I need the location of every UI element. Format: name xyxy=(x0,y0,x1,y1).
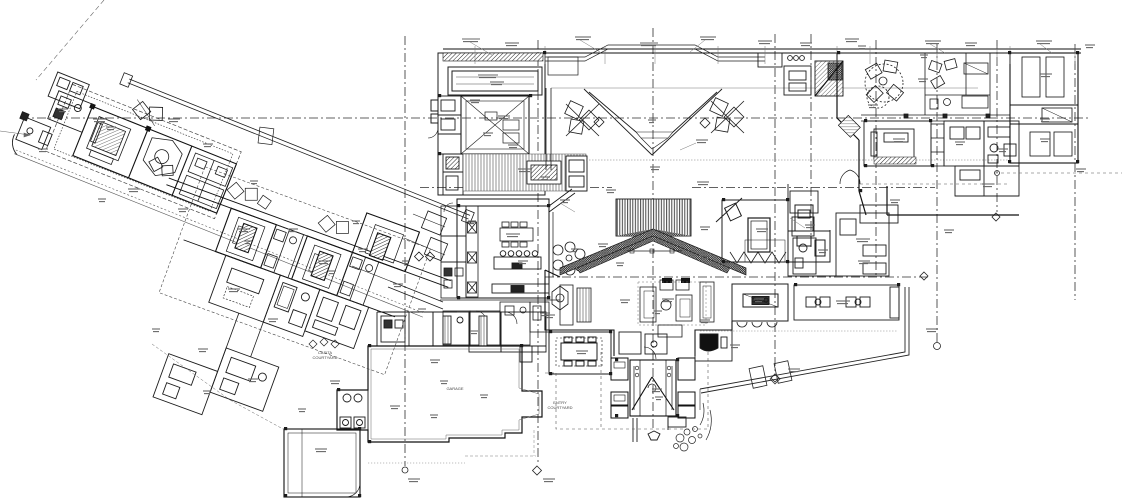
svg-text:COURTYARD: COURTYARD xyxy=(548,405,573,410)
svg-text:COURTYARD: COURTYARD xyxy=(313,355,338,360)
svg-text:GARAGE: GARAGE xyxy=(446,386,463,391)
